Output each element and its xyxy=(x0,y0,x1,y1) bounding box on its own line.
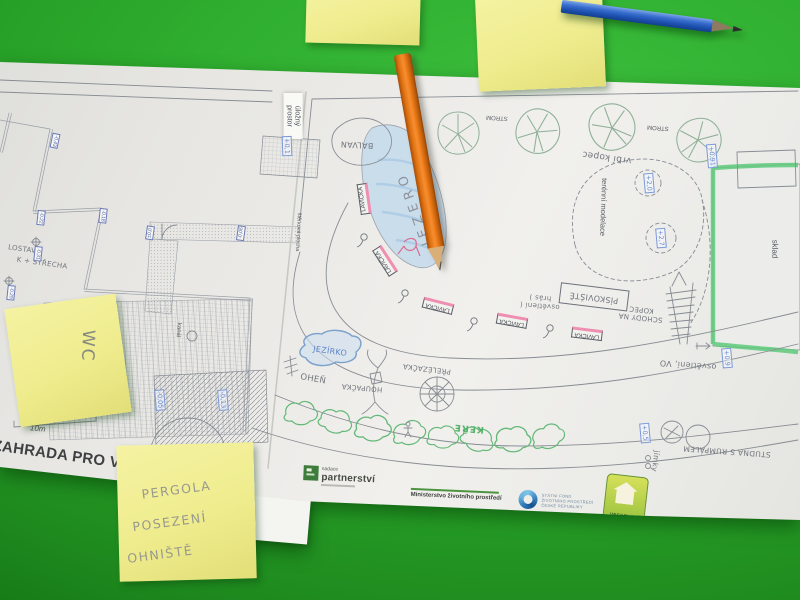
fire-sketch xyxy=(284,356,298,376)
photo-of-garden-plan: úložný prostorBALVANJEZEROSTROMSTROMvrbí… xyxy=(0,0,800,600)
vespolek-text: VESPOLEK xyxy=(604,511,644,520)
sticky-note-wc: WC xyxy=(4,294,131,427)
elevation-marker: +0,9 xyxy=(721,348,733,369)
label-ulozny-prostor: úložný prostor xyxy=(283,93,302,139)
label-kere: KEŘE xyxy=(454,421,485,433)
elevation-marker: +0,1 xyxy=(282,136,293,156)
sticky-note-pergola: PERGOLA POSEZENÍ OHNIŠTĚ xyxy=(116,442,257,582)
elevation-marker: -0,22 xyxy=(36,210,46,226)
bush-row xyxy=(284,402,567,457)
elevation-marker: -0,13 xyxy=(217,389,229,411)
logo-vespolek: VESPOLEK xyxy=(602,473,649,523)
label-strom: STROM xyxy=(486,113,508,121)
elevation-marker: +0,91 xyxy=(706,144,718,169)
elevation-marker: +2,7 xyxy=(655,228,667,249)
elevation-marker: -0,05 xyxy=(154,389,166,411)
elevation-marker: -0,18 xyxy=(98,208,108,224)
vo-arrow xyxy=(696,343,710,349)
gate-hatch xyxy=(154,370,268,448)
logo-text-main: partnerství xyxy=(321,472,375,485)
climber-sketch xyxy=(420,377,454,411)
ministry-text: Ministerstvo životního prostředí xyxy=(410,492,501,502)
posezeni-line: POSEZENÍ xyxy=(132,510,208,535)
logo-ministerstvo: Ministerstvo životního prostředí xyxy=(410,488,501,502)
elevation-marker: -0,29 xyxy=(6,285,16,301)
logo-tagline-bar xyxy=(321,484,355,487)
label-terenni-modelace: terénní modelace xyxy=(598,178,608,236)
nadace-partnerstvi-icon xyxy=(303,465,319,481)
elevation-marker: +0,5 xyxy=(639,423,651,444)
logo-nadace-partnerstvi: nadace partnerství xyxy=(303,465,376,488)
ohniste-line: OHNIŠTĚ xyxy=(126,542,194,566)
label-sklad: sklad xyxy=(769,240,778,259)
shed xyxy=(713,164,800,352)
vespolek-house-icon xyxy=(612,481,638,506)
pergola-line: PERGOLA xyxy=(141,478,212,502)
elevation-marker: +2,0 xyxy=(643,173,655,194)
label-balvan: BALVAN xyxy=(340,139,373,149)
statni-fond-icon xyxy=(518,490,538,510)
elevation-marker: -0,31 xyxy=(33,246,43,262)
sticky-note-blank-top xyxy=(305,0,420,45)
label-jimky: jímky xyxy=(650,450,661,472)
stairs-sketch xyxy=(666,272,696,344)
label-osvetleni: osvětlení ( hrás ) xyxy=(519,292,562,310)
wc-handwriting: WC xyxy=(77,329,98,362)
logo-statni-f ond: STÁTNÍ FOND ŽIVOTNÍHO PROSTŘEDÍ ČESKÉ RE… xyxy=(518,490,594,512)
label-kanal: kanál xyxy=(174,323,182,338)
street-lines xyxy=(0,80,272,102)
label-strom: STROM xyxy=(647,123,669,131)
